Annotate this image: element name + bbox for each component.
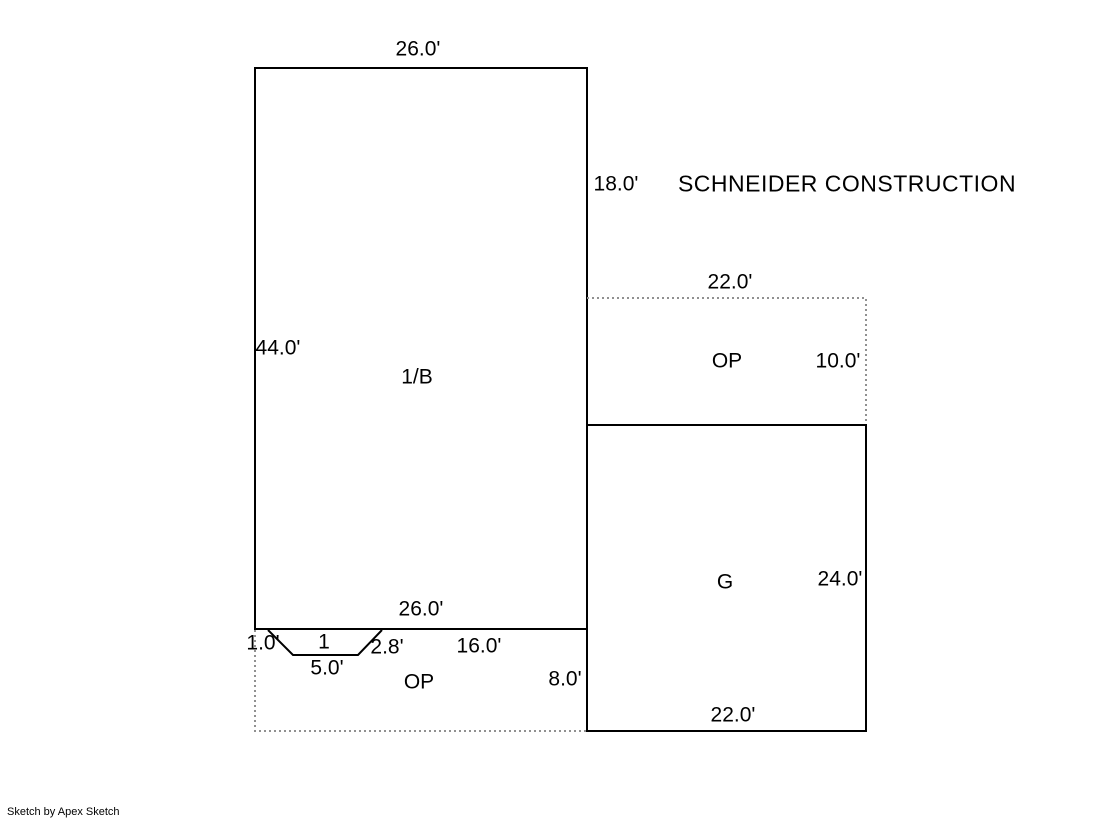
bottom-segment-dimension: 16.0' — [457, 636, 502, 657]
main-building-outline — [255, 68, 587, 629]
main-top-width-dimension: 26.0' — [396, 39, 441, 60]
floorplan-drawing — [0, 0, 1119, 821]
garage-right-height-dimension: 24.0' — [818, 569, 863, 590]
company-name: SCHNEIDER CONSTRUCTION — [678, 173, 1016, 196]
main-right-upper-dimension: 18.0' — [594, 174, 639, 195]
upper-porch-top-width-dimension: 22.0' — [708, 272, 753, 293]
main-left-height-dimension: 44.0' — [256, 338, 301, 359]
lower-porch-area-label: OP — [404, 672, 434, 693]
notch-offset-dimension: 1.0' — [246, 633, 279, 654]
sketch-page: 26.0' 18.0' 44.0' 1/B 26.0' SCHNEIDER CO… — [0, 0, 1119, 821]
garage-area-label: G — [717, 572, 733, 593]
main-bottom-width-dimension: 26.0' — [399, 599, 444, 620]
notch-number-label: 1 — [318, 632, 330, 653]
notch-slant-dimension: 2.8' — [370, 637, 403, 658]
main-building-area-label: 1/B — [401, 367, 433, 388]
upper-porch-right-height-dimension: 10.0' — [816, 351, 861, 372]
upper-porch-area-label: OP — [712, 351, 742, 372]
garage-bottom-width-dimension: 22.0' — [711, 705, 756, 726]
notch-bottom-dimension: 5.0' — [310, 658, 343, 679]
apex-sketch-watermark: Sketch by Apex Sketch — [7, 806, 120, 819]
lower-porch-right-height-dimension: 8.0' — [548, 669, 581, 690]
